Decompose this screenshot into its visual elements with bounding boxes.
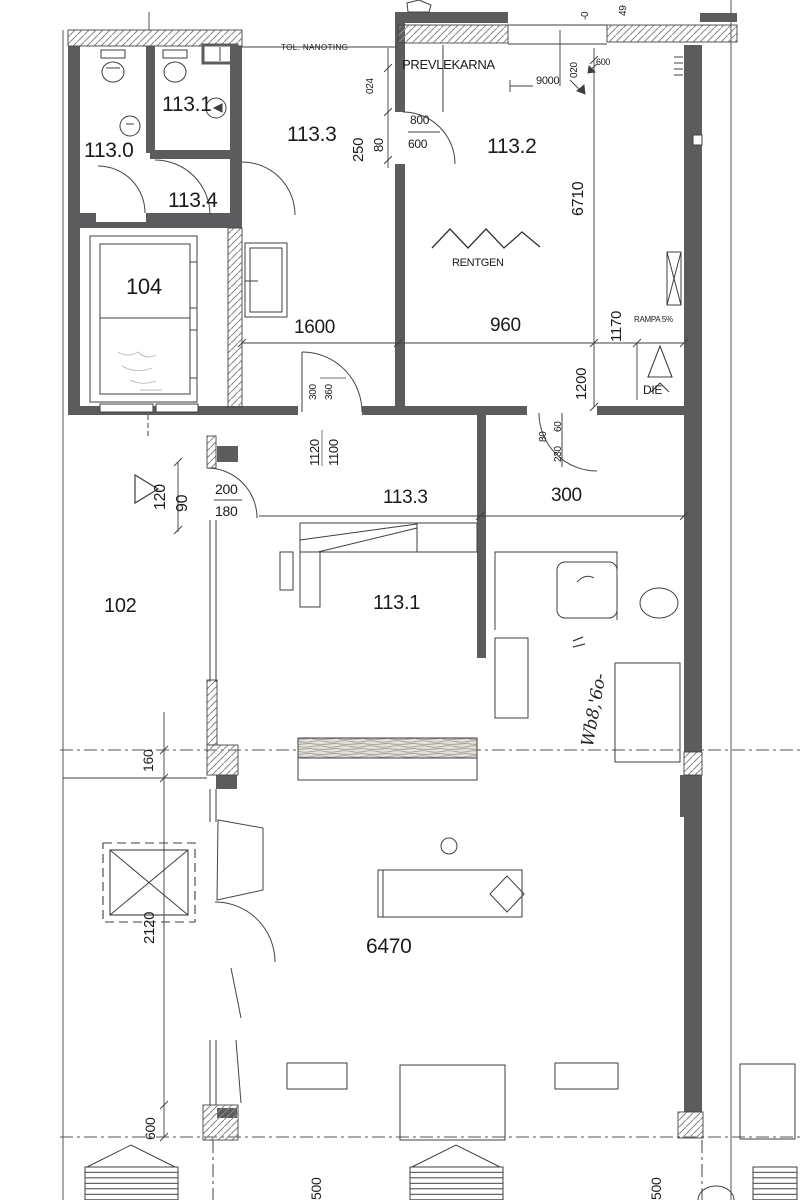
room-label-113-3-top: 113.3 bbox=[287, 124, 337, 145]
dim-800-door: 800 bbox=[410, 114, 429, 126]
rampa-note: RAMPA 5% bbox=[634, 316, 673, 324]
dim-6710: 6710 bbox=[571, 182, 587, 216]
hall-furniture bbox=[287, 738, 795, 1140]
toilet-fixtures bbox=[101, 45, 237, 136]
dim-1100: 1100 bbox=[327, 439, 340, 466]
skylight-box bbox=[103, 843, 195, 922]
rentgen-zigzag-icon bbox=[432, 229, 540, 248]
wall-cabinet bbox=[245, 243, 287, 317]
dim-360-door: 360 bbox=[325, 384, 335, 400]
dim-2120: 2120 bbox=[142, 912, 157, 944]
dim-80-mid: 80 bbox=[539, 431, 549, 442]
chair-curve bbox=[577, 576, 594, 582]
washbasin-icon bbox=[120, 116, 140, 136]
dim-neg0-top: -0 bbox=[581, 12, 591, 20]
dim-180: 180 bbox=[215, 504, 237, 518]
dim-1600: 1600 bbox=[294, 318, 335, 337]
dim-120: 120 bbox=[153, 484, 169, 510]
room-label-104: 104 bbox=[126, 276, 162, 298]
dim-9000: 9000 bbox=[536, 76, 559, 87]
dim-1120: 1120 bbox=[308, 439, 321, 466]
prevlekarna-label: PREVLEKARNA bbox=[402, 58, 495, 71]
arc-bottom-right bbox=[698, 1186, 734, 1200]
doors bbox=[98, 112, 597, 1103]
dim-49-top: 49 bbox=[619, 5, 629, 16]
dim-90: 90 bbox=[175, 495, 191, 512]
room-label-113-3-mid: 113.3 bbox=[383, 488, 428, 507]
room-label-102: 102 bbox=[104, 596, 136, 616]
dim-250: 250 bbox=[351, 138, 366, 162]
dim-60-mid: 60 bbox=[554, 421, 564, 432]
crossed-shaft-icon bbox=[667, 252, 681, 305]
dim-230-mid: 230 bbox=[554, 446, 564, 462]
dim-600-top: 600 bbox=[596, 58, 610, 67]
dim-500-right: 500 bbox=[649, 1178, 663, 1200]
dim-020: 020 bbox=[570, 62, 580, 78]
die-label: DIE bbox=[643, 384, 662, 396]
dim-300-door: 300 bbox=[309, 384, 319, 400]
floor-plan: 113.0 113.1 113.4 113.3 113.2 104 102 11… bbox=[0, 0, 800, 1200]
dim-1200: 1200 bbox=[574, 368, 589, 400]
dim-300-mid: 300 bbox=[551, 486, 582, 505]
room-label-113-2: 113.2 bbox=[487, 136, 537, 157]
elevator-104 bbox=[90, 236, 198, 436]
dim-600-door: 600 bbox=[408, 138, 427, 150]
stairs bbox=[85, 1145, 797, 1200]
pillow-icon bbox=[490, 876, 524, 912]
dim-024: 024 bbox=[366, 78, 376, 94]
room-label-113-0: 113.0 bbox=[84, 140, 134, 161]
dim-200: 200 bbox=[215, 482, 237, 496]
dim-6470: 6470 bbox=[366, 936, 412, 957]
dim-80-top: 80 bbox=[372, 138, 385, 152]
dim-1170: 1170 bbox=[609, 311, 624, 342]
room-label-113-4: 113.4 bbox=[168, 190, 218, 211]
room-label-113-1-top: 113.1 bbox=[162, 94, 212, 115]
room-label-113-1: 113.1 bbox=[373, 593, 420, 613]
dim-960: 960 bbox=[490, 316, 521, 335]
tol-nanoting-note: TOL. NANOTING bbox=[281, 44, 348, 52]
elevator-sketch bbox=[118, 352, 162, 390]
dim-600-bottom: 600 bbox=[143, 1118, 157, 1140]
dim-500-left: 500 bbox=[309, 1178, 323, 1200]
dim-160: 160 bbox=[141, 750, 155, 772]
rentgen-label: RENTGEN bbox=[452, 258, 504, 269]
